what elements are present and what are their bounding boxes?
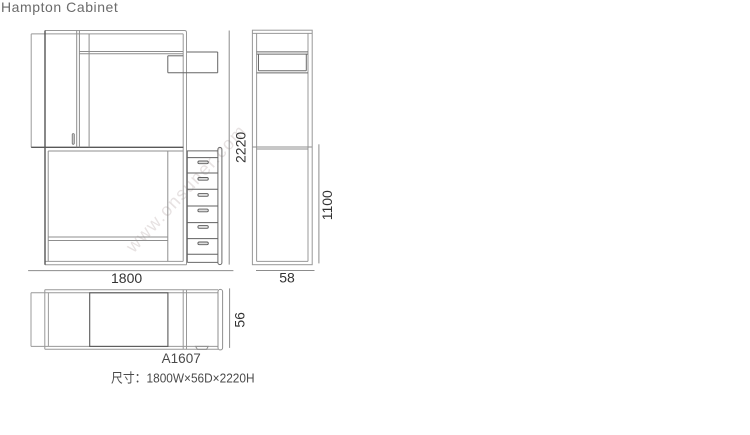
- svg-text:58: 58: [279, 270, 295, 286]
- svg-text:尺寸：1800W×56D×2220H: 尺寸：1800W×56D×2220H: [111, 371, 255, 386]
- svg-text:1800: 1800: [111, 270, 142, 286]
- svg-text:1100: 1100: [319, 190, 335, 220]
- svg-text:Hampton Cabinet: Hampton Cabinet: [1, 0, 118, 15]
- svg-text:www.onsuner.com: www.onsuner.com: [121, 120, 250, 257]
- svg-text:2220: 2220: [233, 132, 249, 163]
- svg-text:56: 56: [232, 312, 248, 328]
- svg-text:A1607: A1607: [162, 351, 201, 366]
